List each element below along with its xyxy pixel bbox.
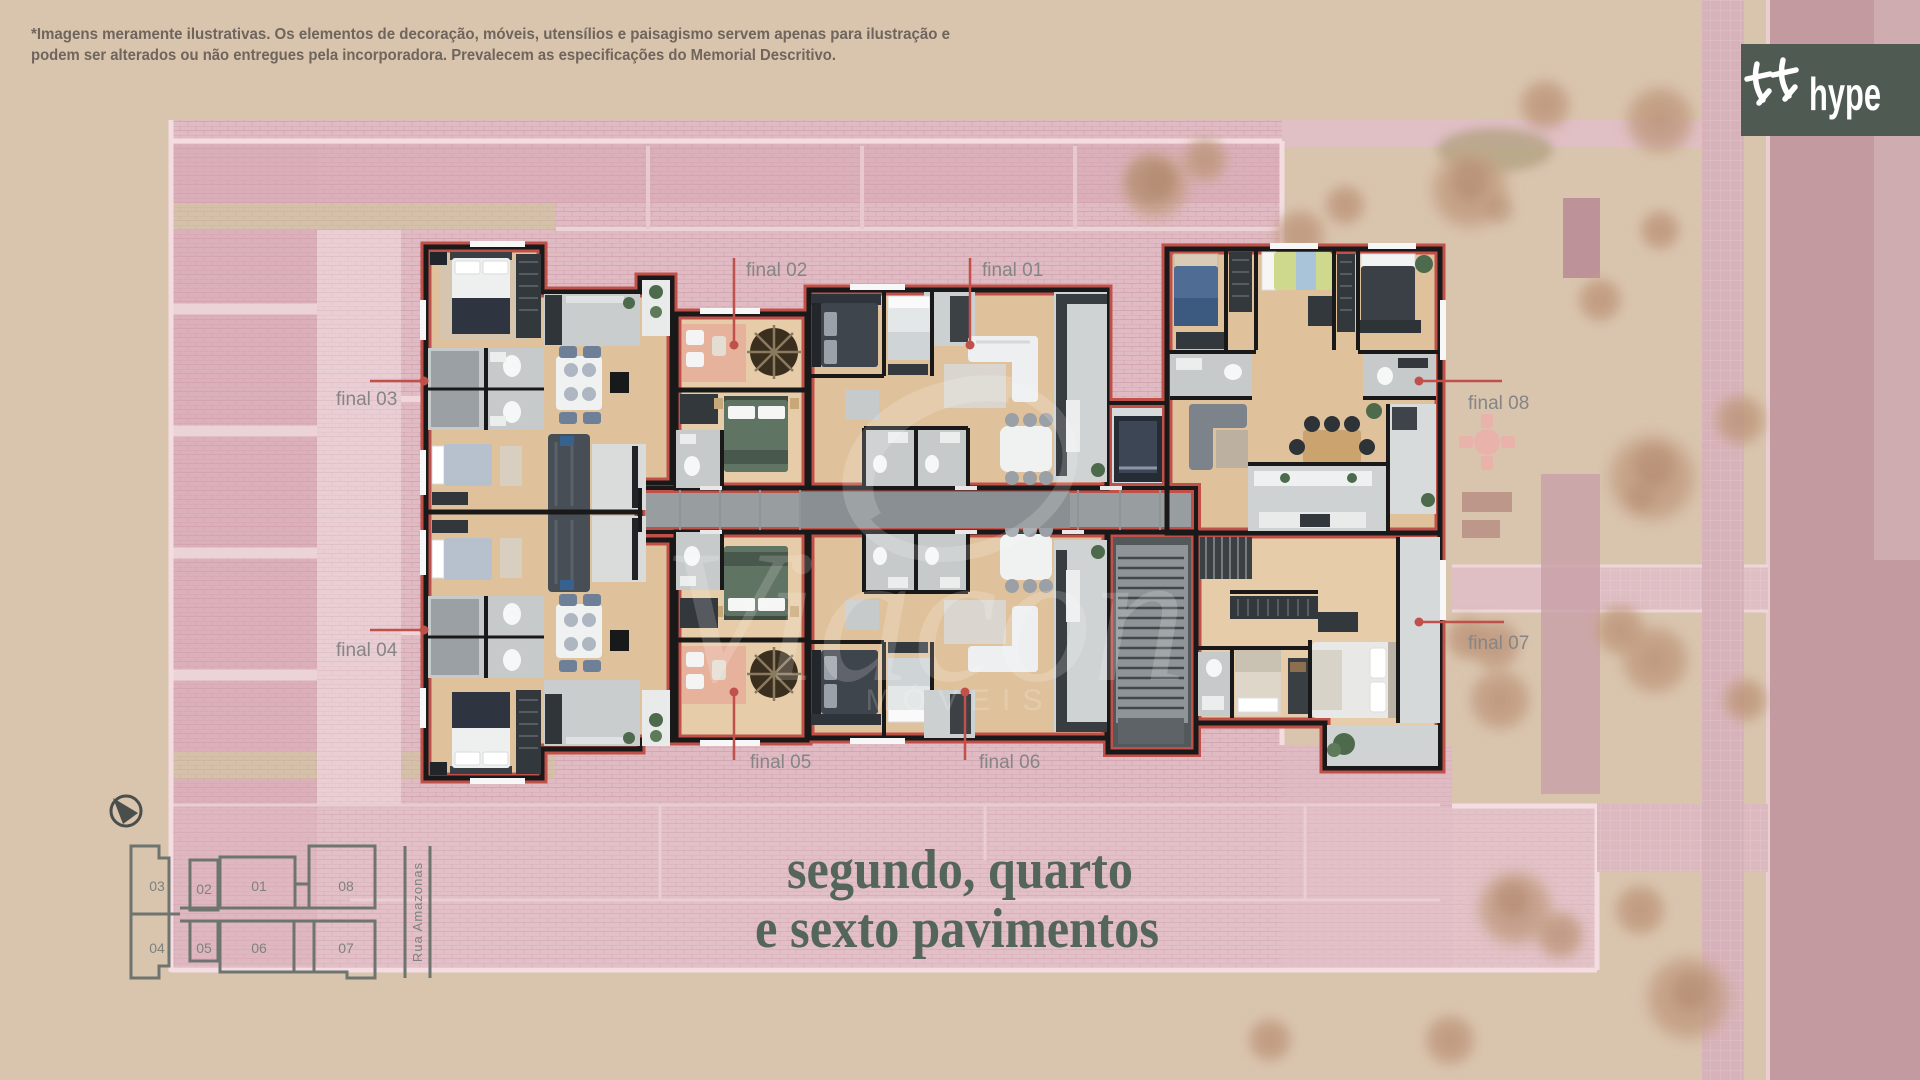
svg-text:07: 07: [338, 940, 354, 956]
svg-text:05: 05: [196, 940, 212, 956]
svg-text:06: 06: [251, 940, 267, 956]
svg-text:01: 01: [251, 878, 267, 894]
svg-text:final 08: final 08: [1468, 393, 1529, 414]
svg-text:04: 04: [149, 940, 165, 956]
svg-text:final 06: final 06: [979, 752, 1040, 773]
svg-text:03: 03: [149, 878, 165, 894]
svg-text:MÓVEIS: MÓVEIS: [866, 684, 1055, 717]
svg-text:final 03: final 03: [336, 389, 397, 410]
svg-text:hype: hype: [1809, 68, 1881, 120]
svg-text:final 07: final 07: [1468, 633, 1529, 654]
svg-text:segundo, quarto: segundo, quarto: [787, 839, 1133, 901]
svg-text:02: 02: [196, 881, 212, 897]
svg-text:08: 08: [338, 878, 354, 894]
svg-text:final 04: final 04: [336, 640, 398, 661]
svg-text:podem ser alterados ou não ent: podem ser alterados ou não entregues pel…: [31, 47, 836, 64]
svg-text:e sexto pavimentos: e sexto pavimentos: [755, 898, 1159, 960]
svg-text:final 05: final 05: [750, 752, 811, 773]
svg-text:*Imagens meramente ilustrativa: *Imagens meramente ilustrativas. Os elem…: [31, 26, 950, 43]
svg-text:final 01: final 01: [982, 260, 1043, 281]
svg-text:final 02: final 02: [746, 260, 807, 281]
svg-text:Rua Amazonas: Rua Amazonas: [410, 862, 425, 962]
